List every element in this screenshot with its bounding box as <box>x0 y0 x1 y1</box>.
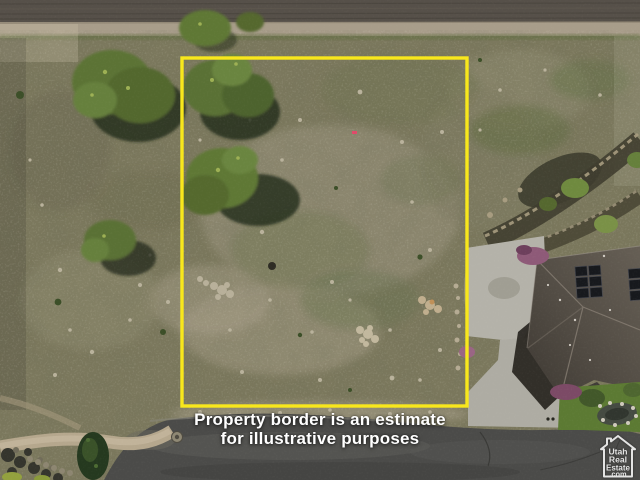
photo-grain <box>0 0 640 480</box>
watermark-text-com: .com <box>609 470 627 478</box>
watermark-logo: Utah Real Estate .com <box>599 434 637 478</box>
aerial-photo-canvas <box>0 0 640 480</box>
aerial-photo: Property border is an estimate for illus… <box>0 0 640 480</box>
